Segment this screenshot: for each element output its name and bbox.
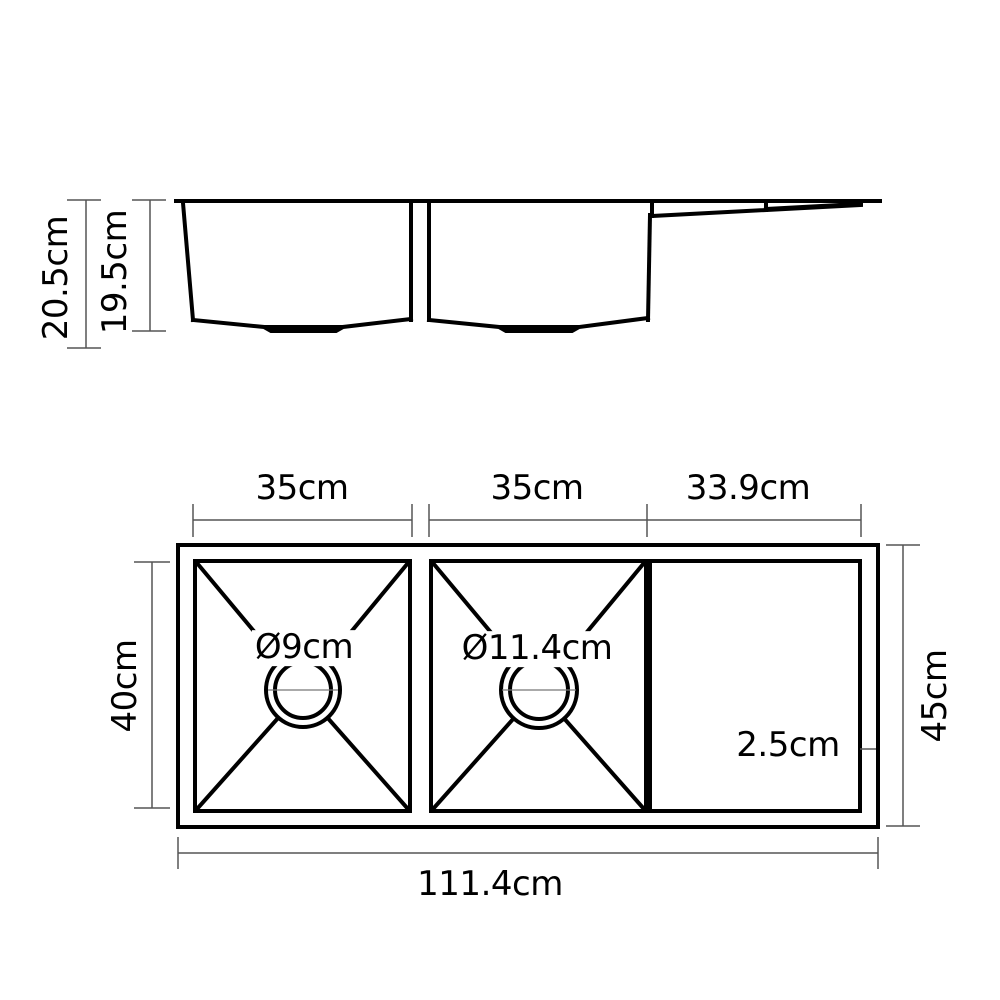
drainboard-underside: [652, 201, 861, 216]
drainboard-width-label: 33.9cm: [686, 471, 811, 507]
overall-length-label: 111.4cm: [417, 867, 563, 903]
bowl2-drain-boss: [497, 325, 580, 333]
rim-width-label: 2.5cm: [736, 728, 839, 764]
bowl1-width-label: 35cm: [255, 471, 348, 507]
bowl2-right-wall: [648, 215, 650, 320]
overall-depth-label: 45cm: [918, 649, 954, 742]
drainboard-rib-line: [766, 204, 858, 209]
sink-dimension-diagram: 20.5cm 19.5cm 35cm 35cm 33.9cm 40cm 45cm…: [0, 0, 1000, 1000]
bowl2-drain-diameter-label: Ø11.4cm: [459, 631, 616, 667]
drainboard-panel: [650, 561, 860, 811]
bowl1-drain-boss: [262, 325, 345, 333]
bowl1-left-wall: [183, 203, 193, 320]
bowl-length-label: 40cm: [108, 639, 144, 732]
side-inner-depth-label: 19.5cm: [98, 210, 134, 335]
bowl2-width-label: 35cm: [490, 471, 583, 507]
top-view: [178, 545, 878, 827]
side-view: [176, 201, 880, 333]
side-outer-depth-label: 20.5cm: [39, 216, 75, 341]
bowl1-drain-diameter-label: Ø9cm: [252, 630, 356, 666]
